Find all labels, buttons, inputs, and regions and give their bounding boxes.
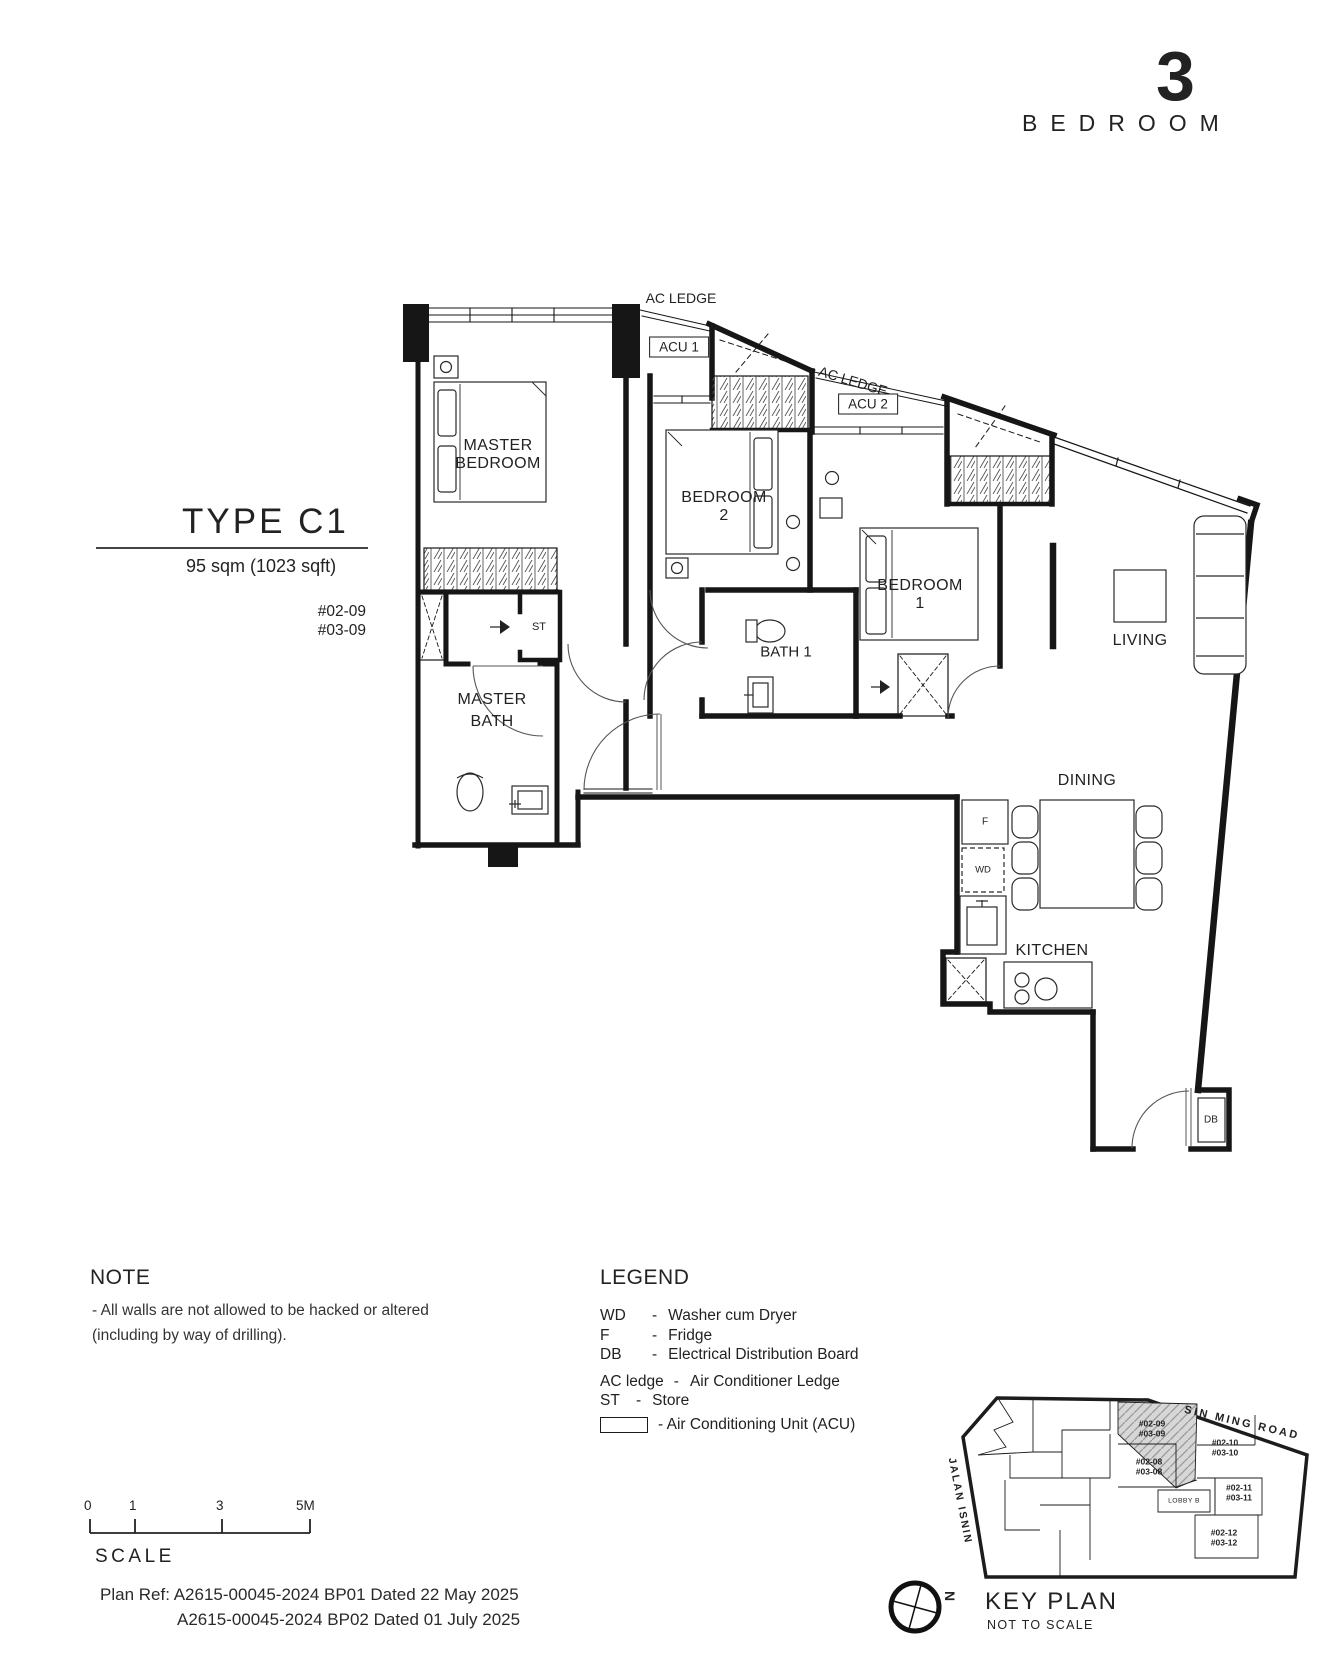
room-label-kitchen: KITCHEN [1015, 942, 1088, 960]
washer-dryer-label: WD [975, 865, 991, 876]
room-label-dining: DINING [1058, 772, 1116, 790]
ac-ledge-label-top: AC LEDGE [646, 290, 717, 306]
store-label: ST [532, 621, 546, 633]
room-label-bedroom-1: BEDROOM 1 [877, 577, 962, 613]
unit-number: #03-09 [1139, 1429, 1165, 1439]
unit-stack-numbers: #02-09 #03-09 [278, 602, 366, 640]
room-label-line: BEDROOM [681, 489, 766, 507]
fridge-label: F [982, 817, 988, 828]
unit-type-title: TYPE C1 [182, 502, 349, 542]
room-label-line: 2 [681, 507, 766, 525]
plan-ref-line-1: Plan Ref: A2615-00045-2024 BP01 Dated 22… [100, 1585, 519, 1605]
key-plan-subheading: NOT TO SCALE [987, 1618, 1094, 1632]
note-line-2: (including by way of drilling). [92, 1327, 287, 1345]
legend-heading: LEGEND [600, 1266, 689, 1290]
room-label-line: MASTER [455, 437, 540, 455]
scale-bar [90, 1519, 310, 1533]
header-bedroom-count: 3 [1156, 36, 1197, 116]
db-label: DB [1204, 1115, 1218, 1126]
room-label-bedroom-2: BEDROOM 2 [681, 489, 766, 525]
scale-label: SCALE [95, 1546, 175, 1568]
keyplan-unit-09-highlighted: #02-09 #03-09 [1139, 1420, 1165, 1439]
scale-tick-0: 0 [84, 1498, 92, 1513]
unit-number: #03-10 [1212, 1448, 1238, 1458]
key-plan-heading: KEY PLAN [985, 1588, 1118, 1616]
acu2-label: ACU 2 [838, 394, 898, 415]
room-label-line: BEDROOM [877, 577, 962, 595]
keyplan-unit-12: #02-12 #03-12 [1211, 1529, 1237, 1548]
acu1-label: ACU 1 [649, 337, 709, 358]
unit-area: 95 sqm (1023 sqft) [186, 556, 336, 577]
room-label-line: BEDROOM [455, 455, 540, 473]
room-label-bath-1: BATH 1 [760, 644, 811, 661]
plan-ref-line-2: A2615-00045-2024 BP02 Dated 01 July 2025 [177, 1610, 520, 1630]
note-heading: NOTE [90, 1266, 150, 1290]
unit-number: #03-12 [1211, 1538, 1237, 1548]
floorplan-page: 3 BEDROOM TYPE C1 95 sqm (1023 sqft) #02… [0, 0, 1332, 1654]
room-label-master-bath: MASTER BATH [457, 689, 526, 733]
keyplan-unit-08: #02-08 #03-08 [1136, 1458, 1162, 1477]
room-label-line: MASTER [457, 689, 526, 711]
unit-number: #03-11 [1226, 1493, 1252, 1503]
keyplan-lobby-label: LOBBY B [1168, 1498, 1200, 1505]
room-label-line: BATH [457, 711, 526, 733]
unit-number: #03-08 [1136, 1467, 1162, 1477]
scale-tick-5m: 5M [296, 1498, 315, 1513]
floor-plan-drawing [0, 0, 1332, 1654]
stack-number: #03-09 [278, 621, 366, 640]
north-label: N [942, 1591, 958, 1601]
scale-tick-3: 3 [216, 1498, 224, 1513]
keyplan-unit-11: #02-11 #03-11 [1226, 1484, 1252, 1503]
scale-tick-1: 1 [129, 1498, 137, 1513]
keyplan-unit-10: #02-10 #03-10 [1212, 1439, 1238, 1458]
room-label-master-bedroom: MASTER BEDROOM [455, 437, 540, 473]
header-bedroom-label: BEDROOM [1022, 110, 1232, 137]
room-label-line: 1 [877, 595, 962, 613]
note-line-1: - All walls are not allowed to be hacked… [92, 1302, 429, 1320]
room-label-living: LIVING [1113, 632, 1168, 650]
north-compass-icon [891, 1583, 939, 1631]
stack-number: #02-09 [278, 602, 366, 621]
